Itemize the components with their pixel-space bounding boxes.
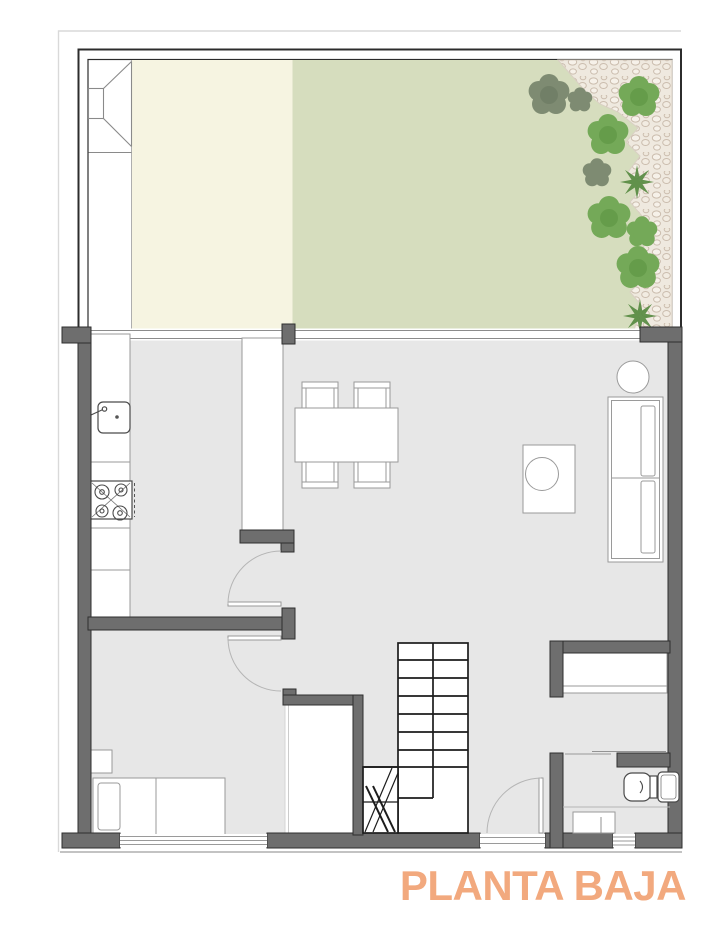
bottom-wall (267, 833, 480, 848)
closet-side-wall (353, 695, 363, 835)
coffee-table (523, 445, 575, 513)
cabinet-end-stub (281, 543, 294, 552)
toilet-icon (624, 773, 657, 801)
dining-table (295, 408, 398, 462)
shower-tray (573, 812, 615, 833)
floor-plan-drawing (0, 0, 718, 950)
closet-wall-notch (283, 689, 296, 695)
plant-core (599, 126, 617, 144)
partition-stub (282, 608, 295, 639)
entrance-threshold (480, 834, 545, 847)
plant-core (630, 88, 648, 106)
round-side-table (617, 361, 649, 393)
plan-title: PLANTA BAJA (400, 862, 686, 910)
bedroom-partition-wall (88, 617, 284, 630)
dining-chair (302, 382, 338, 409)
plant-core (629, 259, 647, 277)
exterior-wall-right (668, 327, 682, 848)
pillow (98, 783, 120, 830)
exterior-wall-left (78, 327, 91, 848)
stove-icon (90, 481, 135, 520)
dining-chair (354, 461, 390, 488)
storage-closet (285, 705, 353, 835)
dining-chair (302, 461, 338, 488)
wardrobe (563, 652, 667, 693)
bathroom-top-wall (617, 753, 670, 767)
bedroom-window (120, 834, 267, 847)
bathroom-window (613, 834, 635, 847)
facade-glazing (90, 329, 668, 341)
facade-pier-left (62, 327, 91, 343)
dressing-room (563, 652, 667, 693)
bathroom-side-wall (550, 753, 563, 848)
closet-top-wall (283, 695, 363, 705)
plant-core (600, 209, 618, 227)
floor-plan-page: PLANTA BAJA (0, 0, 718, 950)
garden (79, 50, 682, 334)
kitchen-counter (90, 334, 130, 617)
facade-pier-center (282, 324, 295, 344)
sofa (608, 397, 663, 562)
bottom-wall (62, 833, 120, 848)
dressing-side-wall (550, 641, 563, 697)
bottom-wall (635, 833, 682, 848)
dining-chair (354, 382, 390, 409)
palm-icon (620, 165, 654, 199)
cabinet-end-wall (240, 530, 294, 543)
bed (93, 778, 225, 835)
dressing-top-wall (550, 641, 670, 653)
shrub-core (540, 86, 558, 104)
washbasin-icon (658, 772, 679, 802)
nightstand (90, 750, 112, 773)
terrace-paving (132, 60, 293, 330)
tall-cabinet (242, 338, 283, 530)
facade-pier-right (640, 327, 682, 342)
house (62, 324, 682, 848)
